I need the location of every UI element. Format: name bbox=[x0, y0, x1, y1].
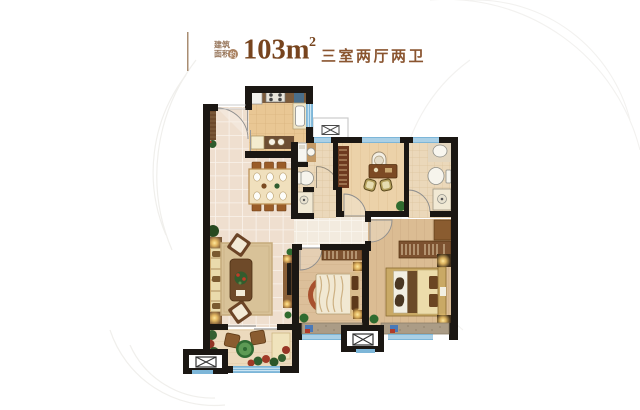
svg-text:约: 约 bbox=[230, 50, 237, 59]
svg-text:103m: 103m bbox=[243, 35, 310, 66]
svg-text:2: 2 bbox=[309, 35, 316, 50]
svg-text:建筑: 建筑 bbox=[213, 40, 230, 50]
svg-text:三室两厅两卫: 三室两厅两卫 bbox=[321, 47, 426, 65]
svg-text:面积: 面积 bbox=[214, 49, 230, 59]
